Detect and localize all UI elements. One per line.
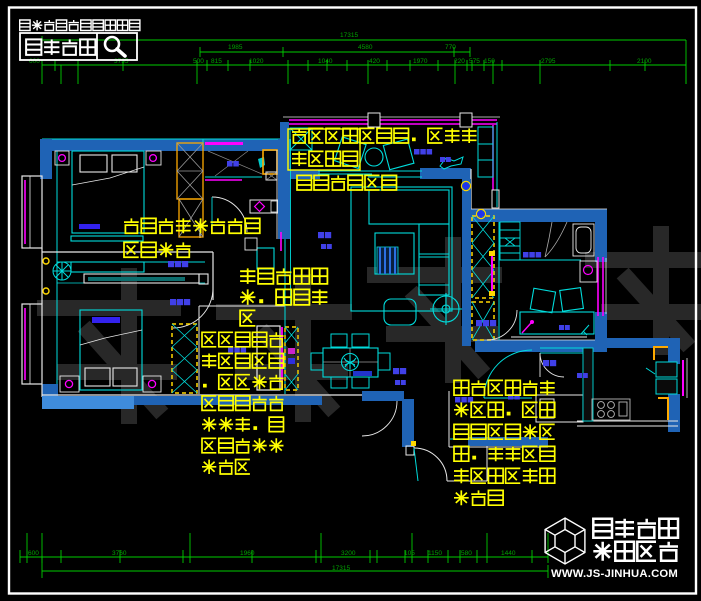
svg-text:1020: 1020	[249, 58, 264, 65]
svg-text:220: 220	[454, 58, 465, 65]
svg-text:3735: 3735	[114, 58, 129, 65]
svg-text:1040: 1040	[318, 58, 333, 65]
svg-text:815: 815	[211, 58, 222, 65]
svg-text:1985: 1985	[228, 44, 243, 51]
svg-text:17315: 17315	[340, 32, 358, 39]
svg-text:1440: 1440	[501, 550, 516, 557]
svg-text:17315: 17315	[332, 565, 350, 572]
svg-text:4580: 4580	[358, 44, 373, 51]
svg-text:600: 600	[28, 550, 39, 557]
svg-text:420: 420	[369, 58, 380, 65]
svg-text:580: 580	[461, 550, 472, 557]
svg-text:1970: 1970	[413, 58, 428, 65]
svg-text:500: 500	[193, 58, 204, 65]
svg-text:WWW.JS-JINHUA.COM: WWW.JS-JINHUA.COM	[551, 568, 678, 580]
svg-text:600: 600	[29, 58, 40, 65]
svg-text:2795: 2795	[541, 58, 556, 65]
svg-text:3760: 3760	[112, 550, 127, 557]
svg-text:150: 150	[484, 58, 495, 65]
svg-text:770: 770	[445, 44, 456, 51]
svg-text:575: 575	[469, 58, 480, 65]
svg-text:2100: 2100	[637, 58, 652, 65]
svg-text:1960: 1960	[240, 550, 255, 557]
svg-text:105: 105	[404, 550, 415, 557]
svg-text:1150: 1150	[428, 550, 442, 557]
svg-text:3200: 3200	[341, 550, 356, 557]
